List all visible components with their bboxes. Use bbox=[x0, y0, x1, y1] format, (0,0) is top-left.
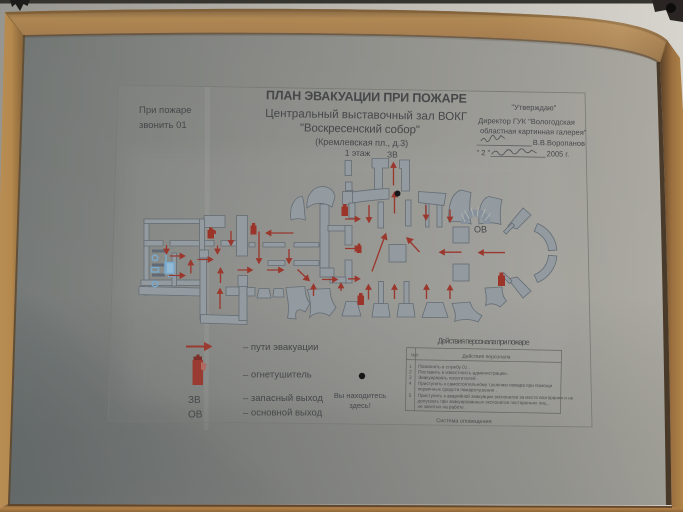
svg-text:здесь!: здесь! bbox=[349, 401, 371, 410]
svg-text:звонить 01: звонить 01 bbox=[139, 120, 187, 131]
svg-text:не занятых на работе .: не занятых на работе . bbox=[417, 404, 466, 410]
svg-text:– основной выход: – основной выход bbox=[243, 408, 323, 419]
svg-text:Система оповещения: Система оповещения bbox=[436, 418, 491, 425]
svg-text:– пути эвакуации: – пути эвакуации bbox=[243, 342, 318, 353]
svg-text:1 этаж: 1 этаж bbox=[345, 148, 371, 158]
svg-text:"Воскресенский собор": "Воскресенский собор" bbox=[300, 122, 420, 136]
svg-text:(Кремлевская пл., д.3): (Кремлевская пл., д.3) bbox=[315, 137, 408, 149]
svg-text:– огнетушитель: – огнетушитель bbox=[243, 370, 312, 381]
svg-text:"Утверждаю": "Утверждаю" bbox=[511, 103, 556, 113]
svg-text:" 2 ": " 2 " bbox=[477, 148, 491, 157]
svg-text:В.В.Воропанов: В.В.Воропанов bbox=[533, 138, 585, 148]
svg-text:– запасный выход: – запасный выход bbox=[243, 393, 323, 404]
svg-text:Эвакуировать посетителей .: Эвакуировать посетителей . bbox=[418, 374, 478, 381]
svg-text:Директор ГУК "Вологодская: Директор ГУК "Вологодская bbox=[478, 116, 575, 127]
svg-text:2005 г.: 2005 г. bbox=[547, 149, 570, 158]
svg-text:При пожаре: При пожаре bbox=[139, 105, 192, 116]
svg-text:№/п: №/п bbox=[411, 352, 419, 357]
svg-text:Действия персонала: Действия персонала bbox=[462, 353, 510, 361]
svg-text:ЗВ: ЗВ bbox=[188, 395, 201, 406]
svg-text:ЗВ: ЗВ bbox=[387, 150, 398, 160]
svg-text:Вы находитесь: Вы находитесь bbox=[334, 391, 386, 400]
svg-text:ОВ: ОВ bbox=[188, 410, 203, 421]
svg-text:областная картинная галерея": областная картинная галерея" bbox=[480, 126, 587, 137]
svg-text:Действия персонала при пожаре: Действия персонала при пожаре bbox=[438, 336, 530, 347]
svg-text:ОВ: ОВ bbox=[474, 225, 487, 235]
